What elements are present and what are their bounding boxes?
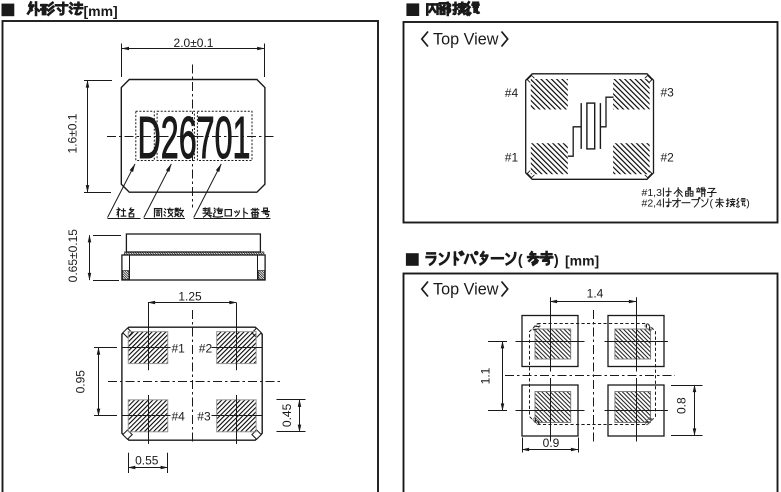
svg-text:): ) (554, 253, 559, 269)
svg-text:0.45: 0.45 (280, 403, 294, 427)
svg-text:(: ( (518, 253, 523, 269)
svg-text:#1: #1 (505, 151, 519, 165)
svg-text:(: ( (710, 197, 714, 209)
svg-text:): ) (746, 197, 750, 209)
svg-text:0.8: 0.8 (675, 397, 689, 414)
svg-text:Top View: Top View (433, 30, 499, 48)
svg-text:#4: #4 (172, 410, 186, 424)
svg-text:#2: #2 (661, 151, 675, 165)
svg-text:0.65±0.15: 0.65±0.15 (66, 229, 80, 283)
svg-text:2.0±0.1: 2.0±0.1 (174, 36, 214, 50)
svg-text:#1: #1 (172, 341, 186, 355)
svg-text:1.1: 1.1 (479, 367, 493, 384)
svg-text:#3: #3 (661, 85, 675, 99)
svg-text:1.4: 1.4 (587, 287, 604, 301)
svg-text:0.95: 0.95 (74, 370, 88, 394)
svg-text:#4: #4 (505, 86, 519, 100)
svg-text:1.25: 1.25 (178, 289, 202, 303)
svg-text:Top View: Top View (433, 280, 499, 298)
svg-text:0.9: 0.9 (543, 436, 560, 450)
svg-text:1.6±0.1: 1.6±0.1 (66, 113, 80, 153)
svg-text:[mm]: [mm] (565, 252, 599, 268)
svg-text:0.55: 0.55 (135, 453, 159, 467)
svg-text:#2,4: #2,4 (642, 197, 663, 209)
svg-text:#3: #3 (197, 410, 211, 424)
svg-text:#2: #2 (199, 341, 213, 355)
svg-text:[mm]: [mm] (84, 3, 118, 19)
